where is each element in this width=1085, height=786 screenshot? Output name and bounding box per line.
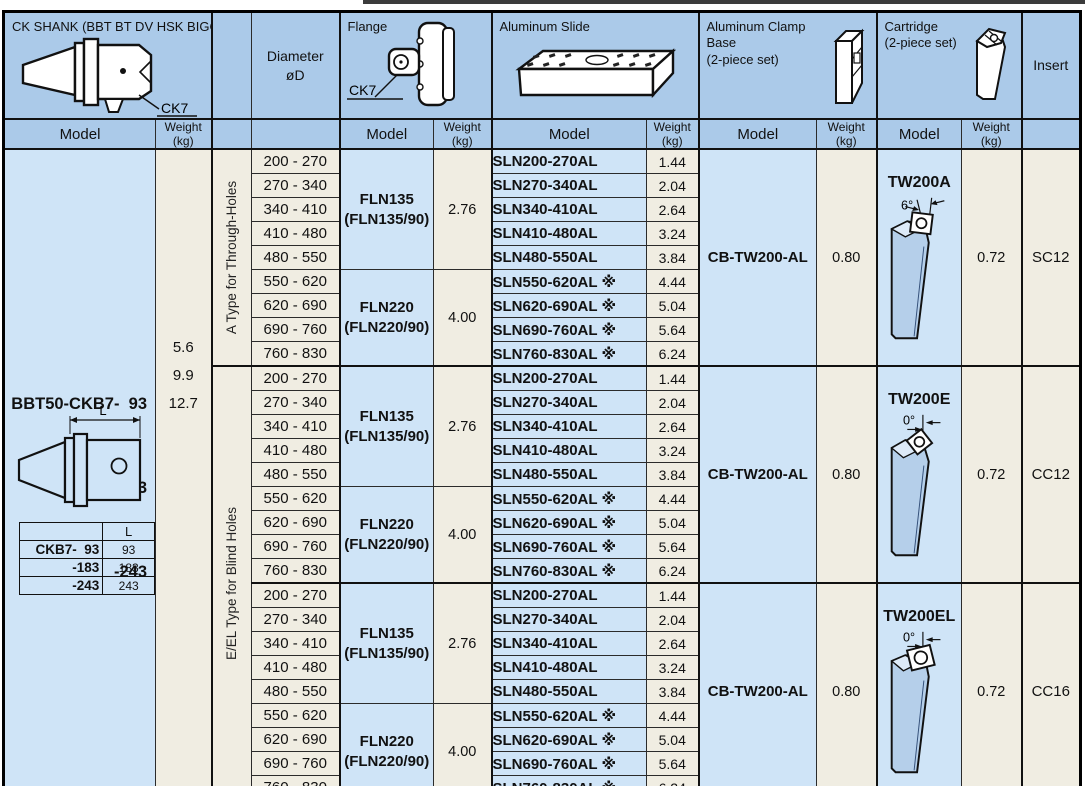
slide-model-cell: SLN550-620AL ※ (492, 270, 647, 294)
diameter-cell: 480 - 550 (252, 246, 340, 270)
diameter-cell: 480 - 550 (252, 463, 340, 487)
slide-weight-cell: 2.64 (647, 415, 699, 439)
diameter-cell: 270 - 340 (252, 174, 340, 198)
flange-model-cell: FLN220 (FLN220/90) (340, 270, 434, 367)
diameter-cell: 760 - 830 (252, 342, 340, 367)
clamp-weight-cell: 0.80 (817, 366, 877, 583)
slide-weight-cell: 3.24 (647, 222, 699, 246)
diameter-cell: 480 - 550 (252, 680, 340, 704)
slide-weight-cell: 3.24 (647, 439, 699, 463)
slide-model-cell: SLN760-830AL ※ (492, 342, 647, 367)
clamp-model-cell: CB-TW200-AL (699, 149, 817, 366)
slide-model-col-header: Model (492, 119, 647, 149)
slide-weight-cell: 5.64 (647, 752, 699, 776)
flange-model-cell: FLN135 (FLN135/90) (340, 583, 434, 704)
type-group-label: E/EL Type for Blind Holes (212, 366, 252, 786)
flange-weight-cell: 2.76 (434, 366, 492, 487)
svg-text:CK7: CK7 (349, 82, 376, 98)
diameter-cell: 340 - 410 (252, 632, 340, 656)
diameter-cell: 620 - 690 (252, 511, 340, 535)
cartridge-weight-cell: 0.72 (962, 149, 1022, 366)
diameter-cell: 200 - 270 (252, 366, 340, 391)
slide-model-cell: SLN270-340AL (492, 174, 647, 198)
cartridge-icon (967, 21, 1015, 105)
clamp-weight-col-header: Weight (kg) (817, 119, 877, 149)
insert-col-header (1022, 119, 1081, 149)
slide-model-cell: SLN410-480AL (492, 222, 647, 246)
shank-length-table: L CKB7- 93 93 -183 183 -243 243 (19, 522, 155, 595)
slide-weight-cell: 2.04 (647, 608, 699, 632)
svg-text:6°: 6° (901, 199, 913, 213)
diameter-cell: 200 - 270 (252, 149, 340, 174)
length-table-model: -183 (20, 559, 103, 577)
clamp-model-cell: CB-TW200-AL (699, 366, 817, 583)
slide-model-cell: SLN340-410AL (492, 632, 647, 656)
slide-model-cell: SLN620-690AL ※ (492, 294, 647, 318)
slide-model-cell: SLN480-550AL (492, 246, 647, 270)
slide-weight-cell: 3.24 (647, 656, 699, 680)
diameter-cell: 340 - 410 (252, 415, 340, 439)
catalog-table: CK SHANK (BBT BT DV HSK BIGCAPTO) CK7 (2, 10, 1082, 786)
cartridge-drawing-tw200e: 0° (880, 411, 958, 561)
diameter-cell: 410 - 480 (252, 439, 340, 463)
slide-model-cell: SLN200-270AL (492, 583, 647, 608)
cartridge-weight-col-header: Weight (kg) (962, 119, 1022, 149)
flange-model-cell: FLN220 (FLN220/90) (340, 487, 434, 584)
slide-weight-cell: 2.04 (647, 174, 699, 198)
cartridge-cell: TW200EL 0° (877, 583, 962, 786)
shank-model-col-header: Model (4, 119, 156, 149)
diameter-col-header (252, 119, 340, 149)
slide-weight-cell: 4.44 (647, 704, 699, 728)
slide-model-cell: SLN200-270AL (492, 366, 647, 391)
slide-model-cell: SLN690-760AL ※ (492, 318, 647, 342)
length-table-model: CKB7- 93 (20, 541, 103, 559)
cartridge-weight-cell: 0.72 (962, 366, 1022, 583)
clamp-model-col-header: Model (699, 119, 817, 149)
top-rule (363, 0, 1085, 4)
slide-model-cell: SLN620-690AL ※ (492, 511, 647, 535)
diameter-cell: 270 - 340 (252, 608, 340, 632)
diameter-cell: 620 - 690 (252, 728, 340, 752)
flange-model-col-header: Model (340, 119, 434, 149)
length-table-header: L (103, 523, 155, 541)
cartridge-model: TW200EL (883, 608, 955, 626)
svg-text:L: L (99, 404, 106, 418)
slide-model-cell: SLN340-410AL (492, 415, 647, 439)
cartridge-title: Cartridge (2-piece set) (885, 19, 957, 52)
shank-weight-col-header: Weight (kg) (156, 119, 212, 149)
diameter-cell: 620 - 690 (252, 294, 340, 318)
slide-model-cell: SLN410-480AL (492, 656, 647, 680)
slide-model-cell: SLN270-340AL (492, 608, 647, 632)
slide-weight-col-header: Weight (kg) (647, 119, 699, 149)
slide-weight-cell: 2.04 (647, 391, 699, 415)
slide-model-cell: SLN270-340AL (492, 391, 647, 415)
header-type-spacer (212, 12, 252, 120)
slide-weight-cell: 1.44 (647, 149, 699, 174)
slide-model-cell: SLN550-620AL ※ (492, 704, 647, 728)
slide-weight-cell: 5.04 (647, 294, 699, 318)
slide-model-cell: SLN340-410AL (492, 198, 647, 222)
diameter-cell: 550 - 620 (252, 270, 340, 294)
clamp-base-title: Aluminum Clamp Base (2-piece set) (707, 19, 806, 68)
flange-model-cell: FLN135 (FLN135/90) (340, 366, 434, 487)
flange-weight-cell: 2.76 (434, 149, 492, 270)
insert-cell: CC16 (1022, 583, 1081, 786)
flange-weight-cell: 4.00 (434, 487, 492, 584)
diameter-cell: 410 - 480 (252, 656, 340, 680)
cartridge-cell: TW200A 6° (877, 149, 962, 366)
length-table-model: -243 (20, 577, 103, 595)
length-table-corner (20, 523, 103, 541)
insert-cell: SC12 (1022, 149, 1081, 366)
flange-model-cell: FLN135 (FLN135/90) (340, 149, 434, 270)
diameter-cell: 690 - 760 (252, 535, 340, 559)
slide-model-cell: SLN620-690AL ※ (492, 728, 647, 752)
slide-model-cell: SLN760-830AL ※ (492, 776, 647, 786)
header-diameter: Diameter øD (252, 12, 340, 120)
diameter-cell: 550 - 620 (252, 487, 340, 511)
header-ck-shank: CK SHANK (BBT BT DV HSK BIGCAPTO) CK7 (4, 12, 212, 120)
slide-title: Aluminum Slide (500, 19, 590, 35)
slide-model-cell: SLN690-760AL ※ (492, 752, 647, 776)
header-cartridge: Cartridge (2-piece set) (877, 12, 1022, 120)
diameter-cell: 200 - 270 (252, 583, 340, 608)
type-group-label: A Type for Through-Holes (212, 149, 252, 366)
diameter-cell: 690 - 760 (252, 318, 340, 342)
slide-weight-cell: 6.24 (647, 342, 699, 367)
diameter-cell: 340 - 410 (252, 198, 340, 222)
slide-weight-cell: 5.64 (647, 318, 699, 342)
slide-weight-cell: 1.44 (647, 583, 699, 608)
diameter-cell: 690 - 760 (252, 752, 340, 776)
slide-weight-cell: 2.64 (647, 198, 699, 222)
clamp-base-icon (828, 25, 872, 111)
diameter-cell: 410 - 480 (252, 222, 340, 246)
shank-side-view-drawing: L (13, 404, 153, 516)
cartridge-weight-cell: 0.72 (962, 583, 1022, 786)
catalog-page: CK SHANK (BBT BT DV HSK BIGCAPTO) CK7 (0, 0, 1085, 786)
length-table-value: 243 (103, 577, 155, 595)
clamp-weight-cell: 0.80 (817, 149, 877, 366)
flange-weight-col-header: Weight (kg) (434, 119, 492, 149)
slide-model-cell: SLN760-830AL ※ (492, 559, 647, 584)
slide-icon (505, 41, 685, 103)
length-table-value: 93 (103, 541, 155, 559)
clamp-weight-cell: 0.80 (817, 583, 877, 786)
flange-weight-cell: 4.00 (434, 704, 492, 786)
diameter-cell: 270 - 340 (252, 391, 340, 415)
flange-weight-cell: 2.76 (434, 583, 492, 704)
slide-weight-cell: 4.44 (647, 487, 699, 511)
slide-weight-cell: 3.84 (647, 246, 699, 270)
slide-model-cell: SLN480-550AL (492, 463, 647, 487)
diameter-cell: 550 - 620 (252, 704, 340, 728)
slide-weight-cell: 2.64 (647, 632, 699, 656)
slide-weight-cell: 5.04 (647, 728, 699, 752)
length-table-value: 183 (103, 559, 155, 577)
cartridge-drawing-tw200el: 0° (880, 628, 958, 778)
diameter-cell: 760 - 830 (252, 776, 340, 786)
diameter-cell: 760 - 830 (252, 559, 340, 584)
slide-weight-cell: 3.84 (647, 680, 699, 704)
flange-model-cell: FLN220 (FLN220/90) (340, 704, 434, 786)
shank-weights: 5.6 9.9 12.7 (156, 334, 211, 418)
header-flange: Flange CK7 (340, 12, 492, 120)
cartridge-drawing-tw200a: 6° (880, 194, 958, 344)
shank-weight-cell: 5.6 9.9 12.7 (156, 149, 212, 786)
slide-weight-cell: 4.44 (647, 270, 699, 294)
cartridge-model-col-header: Model (877, 119, 962, 149)
svg-text:0°: 0° (903, 631, 915, 645)
flange-icon: CK7 (343, 15, 489, 115)
slide-model-cell: SLN690-760AL ※ (492, 535, 647, 559)
slide-weight-cell: 5.64 (647, 535, 699, 559)
clamp-model-cell: CB-TW200-AL (699, 583, 817, 786)
slide-weight-cell: 5.04 (647, 511, 699, 535)
ck-shank-icon: CK7 (11, 33, 207, 117)
slide-weight-cell: 3.84 (647, 463, 699, 487)
slide-model-cell: SLN410-480AL (492, 439, 647, 463)
cartridge-cell: TW200E 0° (877, 366, 962, 583)
svg-text:CK7: CK7 (161, 100, 188, 116)
header-clamp-base: Aluminum Clamp Base (2-piece set) (699, 12, 877, 120)
cartridge-model: TW200E (888, 391, 950, 409)
slide-model-cell: SLN480-550AL (492, 680, 647, 704)
slide-weight-cell: 6.24 (647, 559, 699, 584)
slide-weight-cell: 1.44 (647, 366, 699, 391)
cartridge-model: TW200A (888, 174, 951, 192)
svg-text:0°: 0° (903, 414, 915, 428)
slide-model-cell: SLN200-270AL (492, 149, 647, 174)
slide-model-cell: SLN550-620AL ※ (492, 487, 647, 511)
header-insert: Insert (1022, 12, 1081, 120)
header-slide: Aluminum Slide (492, 12, 699, 120)
insert-cell: CC12 (1022, 366, 1081, 583)
shank-model-cell: BBT50-CKB7- 93 -183 -243 L (4, 149, 156, 786)
slide-weight-cell: 6.24 (647, 776, 699, 786)
type-col-header (212, 119, 252, 149)
flange-weight-cell: 4.00 (434, 270, 492, 367)
